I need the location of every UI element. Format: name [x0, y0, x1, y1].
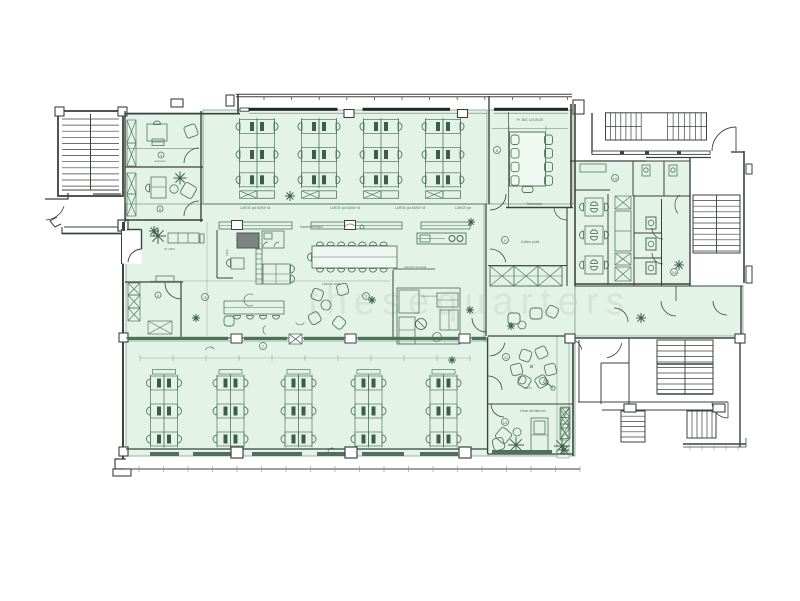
svg-text:LARGE pot 60/84+44: LARGE pot 60/84+44 [330, 206, 361, 210]
svg-text:LARGE pot 60/84+44: LARGE pot 60/84+44 [395, 206, 426, 210]
svg-text:14: 14 [672, 270, 677, 275]
svg-text:transformentypil: transformentypil [300, 225, 323, 229]
svg-text:thesequarters: thesequarters [308, 281, 631, 323]
svg-text:LARGE pot 60/84+44: LARGE pot 60/84+44 [240, 206, 271, 210]
svg-text:10: 10 [613, 176, 618, 181]
svg-text:Tele/media: Tele/media [526, 202, 542, 206]
svg-text:transformerstvall: transformerstvall [404, 265, 427, 269]
svg-text:Internet zone: Internet zone [421, 294, 438, 298]
svg-text:1400: 1400 [225, 249, 229, 256]
svg-text:12: 12 [503, 420, 508, 425]
svg-text:workroom: workroom [154, 159, 165, 163]
svg-text:LARGE pot: LARGE pot [455, 206, 471, 210]
svg-text:Coffee point: Coffee point [521, 240, 540, 244]
svg-text:Clean all intercom: Clean all intercom [520, 409, 546, 413]
svg-text:31+31: 31+31 [524, 386, 532, 390]
svg-text:47 1603: 47 1603 [164, 247, 175, 251]
svg-text:Lounge zone: Lounge zone [322, 282, 341, 286]
svg-text:Pr. BIG LOUNGE: Pr. BIG LOUNGE [516, 118, 544, 122]
